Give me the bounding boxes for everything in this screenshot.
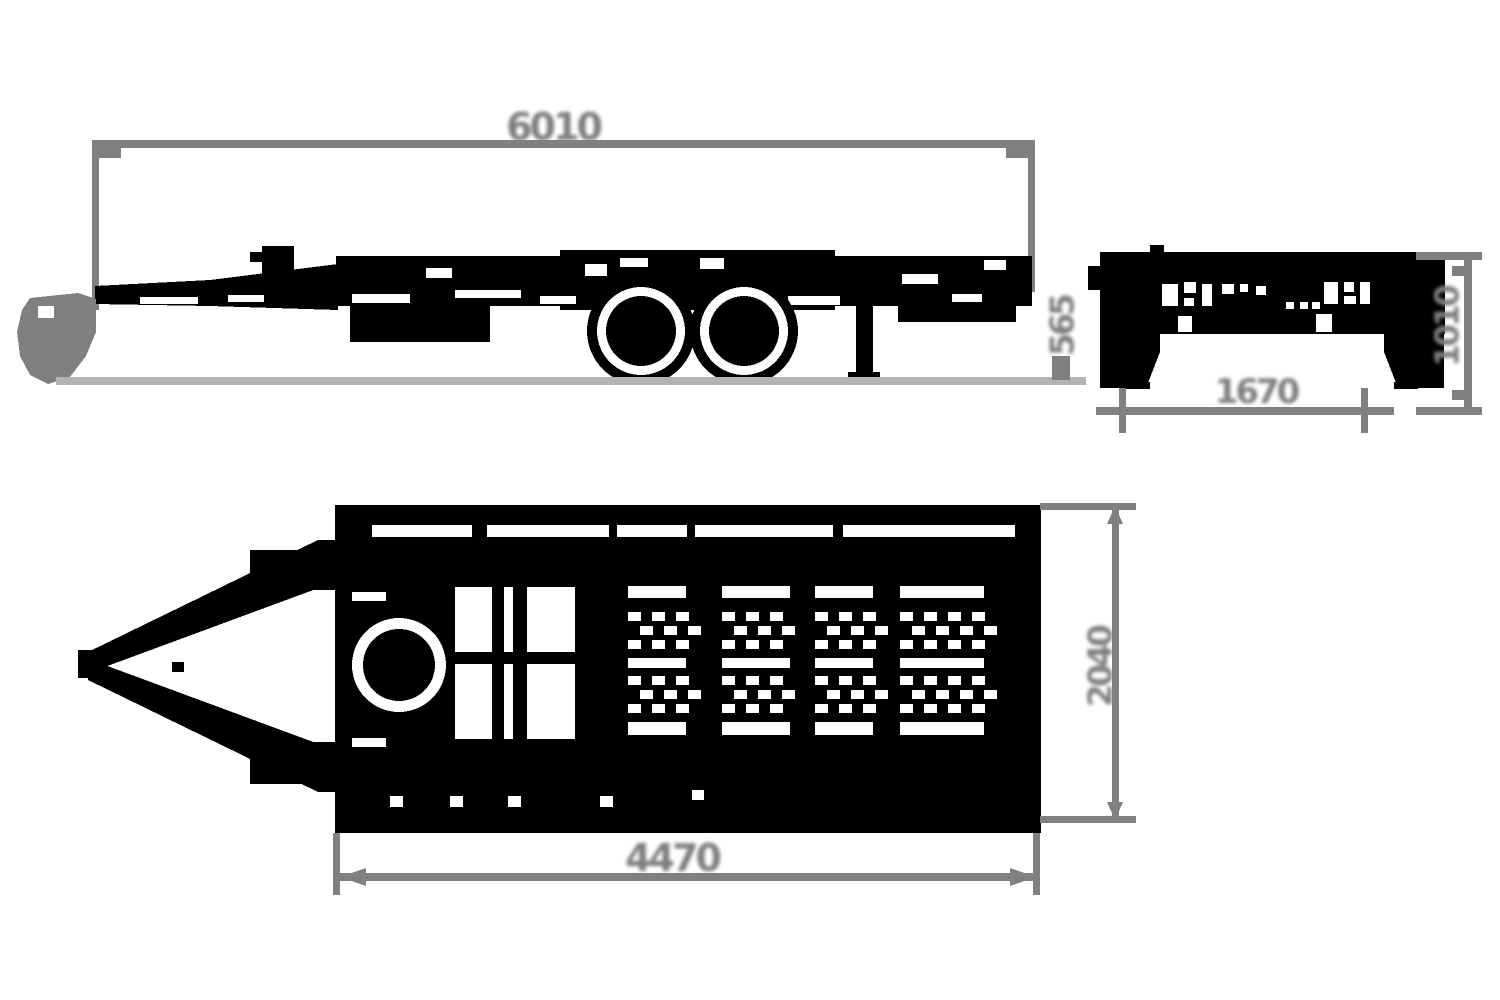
top-drawbar xyxy=(78,540,336,792)
ground-line xyxy=(56,377,1086,385)
side-height-dimension-line xyxy=(1052,356,1070,380)
side-wheel-front xyxy=(587,277,695,385)
drawing-svg xyxy=(0,0,1500,1000)
side-view-drawing xyxy=(17,140,1086,385)
side-wheel-rear xyxy=(690,277,798,385)
rear-width-label: 1670 xyxy=(1215,372,1298,412)
top-bed-length-label: 4470 xyxy=(625,836,719,880)
side-support-leg xyxy=(856,306,873,376)
rear-trailer-silhouette xyxy=(1088,245,1445,389)
jockey-wheel xyxy=(17,293,96,384)
top-bed-width-label: 2040 xyxy=(1081,627,1120,707)
side-trailer-silhouette xyxy=(95,246,1032,380)
side-loading-height-label: 565 xyxy=(1043,296,1082,356)
trailer-technical-drawing: 6010 565 1670 1010 4470 2040 xyxy=(0,0,1500,1000)
hitch-coupler xyxy=(78,650,92,678)
rear-overall-height-label: 1010 xyxy=(1428,287,1467,367)
rear-mudguard-left xyxy=(1100,334,1160,388)
side-overall-length-label: 6010 xyxy=(506,105,600,149)
top-view-drawing xyxy=(78,503,1136,895)
